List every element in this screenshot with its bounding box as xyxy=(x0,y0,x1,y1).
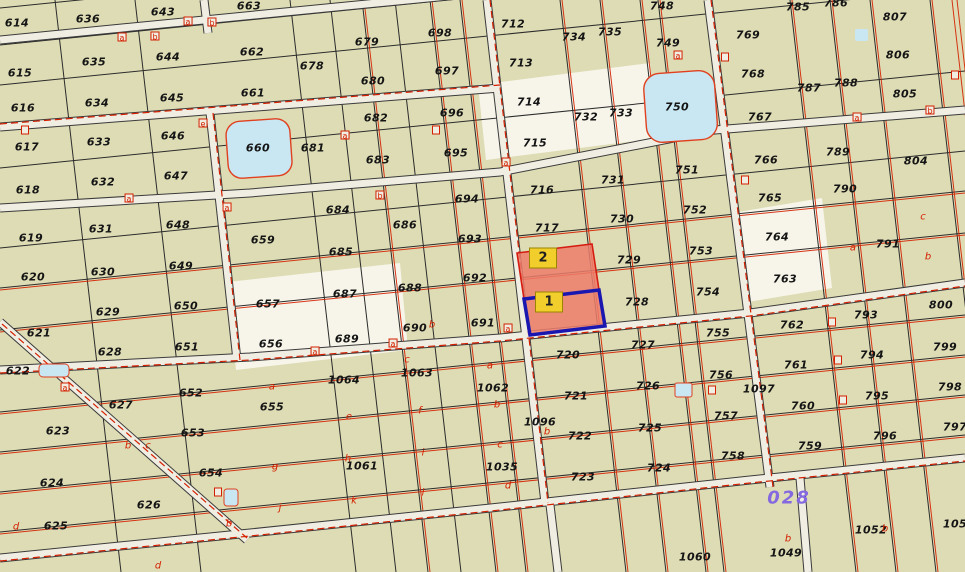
parcel-subletter-b: b xyxy=(544,427,550,438)
parcel-number-694[interactable]: 694 xyxy=(455,193,479,206)
parcel-number-680[interactable]: 680 xyxy=(361,75,385,88)
parcel-number-1035[interactable]: 1035 xyxy=(486,461,518,474)
parcel-number-749[interactable]: 749 xyxy=(656,37,680,50)
parcel-number-618[interactable]: 618 xyxy=(16,184,40,197)
parcel-number-756[interactable]: 756 xyxy=(709,369,733,382)
parcel-number-1096[interactable]: 1096 xyxy=(524,416,556,429)
parcel-number-660[interactable]: 660 xyxy=(246,142,270,155)
parcel-number-767[interactable]: 767 xyxy=(748,111,772,124)
parcel-number-634[interactable]: 634 xyxy=(85,97,109,110)
parcel-number-633[interactable]: 633 xyxy=(87,136,111,149)
map-marker: a xyxy=(341,131,350,140)
parcel-number-648[interactable]: 648 xyxy=(166,219,190,232)
parcel-subletter-j: j xyxy=(279,503,282,514)
map-marker xyxy=(721,53,729,62)
parcel-number-754[interactable]: 754 xyxy=(696,286,720,299)
parcel-number-628[interactable]: 628 xyxy=(98,346,122,359)
parcel-number-617[interactable]: 617 xyxy=(15,141,39,154)
parcel-number-763[interactable]: 763 xyxy=(773,273,797,286)
parcel-number-806[interactable]: 806 xyxy=(886,49,910,62)
parcel-number-764[interactable]: 764 xyxy=(765,231,789,244)
parcel-number-761[interactable]: 761 xyxy=(784,359,808,372)
parcel-number-757[interactable]: 757 xyxy=(714,410,738,423)
parcel-number-796[interactable]: 796 xyxy=(873,430,897,443)
parcel-number-649[interactable]: 649 xyxy=(169,260,193,273)
parcel-subletter-b: b xyxy=(429,320,435,331)
parcel-number-651[interactable]: 651 xyxy=(175,341,199,354)
parcel-number-715[interactable]: 715 xyxy=(523,137,547,150)
parcel-number-713[interactable]: 713 xyxy=(509,57,533,70)
parcel-number-614[interactable]: 614 xyxy=(5,17,29,30)
parcel-number-656[interactable]: 656 xyxy=(259,338,283,351)
parcel-number-689[interactable]: 689 xyxy=(335,333,359,346)
parcel-number-804[interactable]: 804 xyxy=(904,155,928,168)
parcel-number-793[interactable]: 793 xyxy=(854,309,878,322)
parcel-number-759[interactable]: 759 xyxy=(798,440,822,453)
parcel-number-105[interactable]: 105 xyxy=(943,518,965,531)
parcel-number-1049[interactable]: 1049 xyxy=(770,547,802,560)
parcel-number-636[interactable]: 636 xyxy=(76,13,100,26)
map-marker: a xyxy=(118,33,127,42)
parcel-number-787[interactable]: 787 xyxy=(797,82,821,95)
map-marker xyxy=(708,386,716,395)
parcel-subletter-e: e xyxy=(346,412,352,423)
parcel-subletter-a: a xyxy=(269,382,275,393)
map-marker: a xyxy=(674,51,683,60)
map-marker: b xyxy=(150,32,159,41)
parcel-number-712[interactable]: 712 xyxy=(501,18,525,31)
parcel-number-735[interactable]: 735 xyxy=(598,26,622,39)
parcel-number-716[interactable]: 716 xyxy=(530,184,554,197)
parcel-number-690[interactable]: 690 xyxy=(403,322,427,335)
parcel-number-691[interactable]: 691 xyxy=(471,317,495,330)
map-marker: a xyxy=(223,203,232,212)
parcel-subletter-g: g xyxy=(272,462,278,473)
parcel-subletter-k: k xyxy=(351,496,357,507)
parcel-number-630[interactable]: 630 xyxy=(91,266,115,279)
parcel-number-755[interactable]: 755 xyxy=(706,327,730,340)
parcel-subletter-c: c xyxy=(145,441,151,452)
parcel-number-798[interactable]: 798 xyxy=(938,381,962,394)
parcel-number-624[interactable]: 624 xyxy=(40,477,64,490)
parcel-number-752[interactable]: 752 xyxy=(683,204,707,217)
parcel-number-622[interactable]: 622 xyxy=(6,365,30,378)
parcel-subletter-a: a xyxy=(487,361,493,372)
parcel-subletter-f: f xyxy=(418,406,422,417)
parcel-subletter-d: d xyxy=(13,522,19,533)
map-marker: a xyxy=(853,113,862,122)
parcel-number-723[interactable]: 723 xyxy=(571,471,595,484)
parcel-number-645[interactable]: 645 xyxy=(160,92,184,105)
parcel-number-620[interactable]: 620 xyxy=(21,271,45,284)
parcel-number-626[interactable]: 626 xyxy=(137,499,161,512)
parcel-subletter-c: c xyxy=(497,440,503,451)
highlight-label-parcel-1[interactable]: 1 xyxy=(535,292,563,313)
parcel-number-768[interactable]: 768 xyxy=(741,68,765,81)
parcel-number-748[interactable]: 748 xyxy=(650,0,674,13)
labels-layer: 6146156166176186196206216226236246256266… xyxy=(0,0,965,572)
parcel-number-760[interactable]: 760 xyxy=(791,400,815,413)
parcel-subletter-l: l xyxy=(422,488,425,499)
parcel-number-724[interactable]: 724 xyxy=(647,462,671,475)
parcel-number-786[interactable]: 786 xyxy=(824,0,848,10)
parcel-number-652[interactable]: 652 xyxy=(179,387,203,400)
parcel-number-762[interactable]: 762 xyxy=(780,319,804,332)
map-marker xyxy=(951,71,959,80)
map-marker xyxy=(214,488,222,497)
parcel-number-646[interactable]: 646 xyxy=(161,130,185,143)
parcel-number-1063[interactable]: 1063 xyxy=(401,367,433,380)
parcel-subletter-b: b xyxy=(226,519,232,530)
parcel-number-663[interactable]: 663 xyxy=(237,0,261,13)
parcel-subletter-a: a xyxy=(850,243,856,254)
parcel-subletter-b: b xyxy=(925,252,931,263)
parcel-number-766[interactable]: 766 xyxy=(754,154,778,167)
parcel-number-619[interactable]: 619 xyxy=(19,232,43,245)
map-marker xyxy=(21,126,29,135)
parcel-number-621[interactable]: 621 xyxy=(27,327,51,340)
parcel-subletter-b: b xyxy=(785,534,791,545)
map-marker: a xyxy=(311,347,320,356)
parcel-number-647[interactable]: 647 xyxy=(164,170,188,183)
parcel-number-729[interactable]: 729 xyxy=(617,254,641,267)
parcel-number-684[interactable]: 684 xyxy=(326,204,350,217)
parcel-number-657[interactable]: 657 xyxy=(256,298,280,311)
parcel-number-769[interactable]: 769 xyxy=(736,29,760,42)
parcel-subletter-d: d xyxy=(155,561,161,572)
parcel-subletter-h: h xyxy=(345,454,351,465)
parcel-number-681[interactable]: 681 xyxy=(301,142,325,155)
parcel-number-750[interactable]: 750 xyxy=(665,101,689,114)
parcel-number-1064[interactable]: 1064 xyxy=(328,374,360,387)
block-number: 028 xyxy=(767,488,811,509)
parcel-number-661[interactable]: 661 xyxy=(241,87,265,100)
parcel-number-785[interactable]: 785 xyxy=(786,1,810,14)
parcel-number-678[interactable]: 678 xyxy=(300,60,324,73)
map-marker: a xyxy=(502,158,511,167)
map-marker xyxy=(432,126,440,135)
parcel-number-805[interactable]: 805 xyxy=(893,88,917,101)
parcel-number-797[interactable]: 797 xyxy=(943,421,965,434)
parcel-number-655[interactable]: 655 xyxy=(260,401,284,414)
parcel-number-732[interactable]: 732 xyxy=(574,111,598,124)
map-marker: e xyxy=(199,119,208,128)
map-marker: a xyxy=(61,383,70,392)
parcel-number-1060[interactable]: 1060 xyxy=(679,551,711,564)
parcel-number-629[interactable]: 629 xyxy=(96,306,120,319)
parcel-number-693[interactable]: 693 xyxy=(458,233,482,246)
parcel-number-692[interactable]: 692 xyxy=(463,272,487,285)
cadastral-map-viewport[interactable]: 6146156166176186196206216226236246256266… xyxy=(0,0,965,572)
parcel-number-717[interactable]: 717 xyxy=(535,222,559,235)
parcel-number-696[interactable]: 696 xyxy=(440,107,464,120)
parcel-number-794[interactable]: 794 xyxy=(860,349,884,362)
map-marker xyxy=(741,176,749,185)
parcel-number-751[interactable]: 751 xyxy=(675,164,699,177)
parcel-number-722[interactable]: 722 xyxy=(568,430,592,443)
parcel-number-1097[interactable]: 1097 xyxy=(743,383,775,396)
map-marker: a xyxy=(125,194,134,203)
map-marker xyxy=(834,356,842,365)
map-marker: b xyxy=(207,18,216,27)
parcel-number-643[interactable]: 643 xyxy=(151,6,175,19)
parcel-number-800[interactable]: 800 xyxy=(929,299,953,312)
parcel-number-788[interactable]: 788 xyxy=(834,77,858,90)
parcel-subletter-b: b xyxy=(882,524,888,535)
parcel-number-791[interactable]: 791 xyxy=(876,238,900,251)
parcel-number-753[interactable]: 753 xyxy=(689,245,713,258)
parcel-number-795[interactable]: 795 xyxy=(865,390,889,403)
parcel-number-687[interactable]: 687 xyxy=(333,288,357,301)
highlight-label-parcel-2[interactable]: 2 xyxy=(529,248,557,269)
parcel-number-726[interactable]: 726 xyxy=(636,380,660,393)
parcel-number-662[interactable]: 662 xyxy=(240,46,264,59)
parcel-number-731[interactable]: 731 xyxy=(601,174,625,187)
parcel-number-807[interactable]: 807 xyxy=(883,11,907,24)
parcel-number-635[interactable]: 635 xyxy=(82,56,106,69)
parcel-number-632[interactable]: 632 xyxy=(91,176,115,189)
parcel-number-650[interactable]: 650 xyxy=(174,300,198,313)
map-marker xyxy=(828,318,836,327)
parcel-number-697[interactable]: 697 xyxy=(435,65,459,78)
map-marker: a xyxy=(184,17,193,26)
parcel-number-686[interactable]: 686 xyxy=(393,219,417,232)
parcel-number-728[interactable]: 728 xyxy=(625,296,649,309)
parcel-number-733[interactable]: 733 xyxy=(609,107,633,120)
map-marker: a xyxy=(389,339,398,348)
map-marker: a xyxy=(504,324,513,333)
parcel-subletter-c: c xyxy=(920,212,926,223)
map-marker: b xyxy=(375,191,384,200)
map-marker: b xyxy=(925,106,934,115)
parcel-number-734[interactable]: 734 xyxy=(562,31,586,44)
parcel-number-616[interactable]: 616 xyxy=(11,102,35,115)
parcel-number-758[interactable]: 758 xyxy=(721,450,745,463)
parcel-number-682[interactable]: 682 xyxy=(364,112,388,125)
parcel-number-765[interactable]: 765 xyxy=(758,192,782,205)
parcel-number-625[interactable]: 625 xyxy=(44,520,68,533)
parcel-number-631[interactable]: 631 xyxy=(89,223,113,236)
parcel-number-627[interactable]: 627 xyxy=(109,399,133,412)
parcel-number-725[interactable]: 725 xyxy=(638,422,662,435)
parcel-number-654[interactable]: 654 xyxy=(199,467,223,480)
parcel-number-720[interactable]: 720 xyxy=(556,349,580,362)
parcel-subletter-b: b xyxy=(494,400,500,411)
parcel-number-727[interactable]: 727 xyxy=(631,339,655,352)
parcel-number-695[interactable]: 695 xyxy=(444,147,468,160)
parcel-number-644[interactable]: 644 xyxy=(156,51,180,64)
parcel-number-790[interactable]: 790 xyxy=(833,183,857,196)
parcel-number-714[interactable]: 714 xyxy=(517,96,541,109)
parcel-subletter-c: c xyxy=(404,355,410,366)
parcel-number-623[interactable]: 623 xyxy=(46,425,70,438)
parcel-number-789[interactable]: 789 xyxy=(826,146,850,159)
parcel-number-679[interactable]: 679 xyxy=(355,36,379,49)
map-marker xyxy=(839,396,847,405)
parcel-number-730[interactable]: 730 xyxy=(610,213,634,226)
parcel-number-799[interactable]: 799 xyxy=(933,341,957,354)
parcel-number-615[interactable]: 615 xyxy=(8,67,32,80)
parcel-number-698[interactable]: 698 xyxy=(428,27,452,40)
parcel-subletter-b: b xyxy=(125,441,131,452)
parcel-number-1062[interactable]: 1062 xyxy=(477,382,509,395)
parcel-number-683[interactable]: 683 xyxy=(366,154,390,167)
parcel-number-653[interactable]: 653 xyxy=(181,427,205,440)
parcel-number-721[interactable]: 721 xyxy=(564,390,588,403)
parcel-number-659[interactable]: 659 xyxy=(251,234,275,247)
parcel-subletter-d: d xyxy=(505,481,511,492)
parcel-number-685[interactable]: 685 xyxy=(329,246,353,259)
parcel-number-688[interactable]: 688 xyxy=(398,282,422,295)
parcel-subletter-i: i xyxy=(422,448,425,459)
